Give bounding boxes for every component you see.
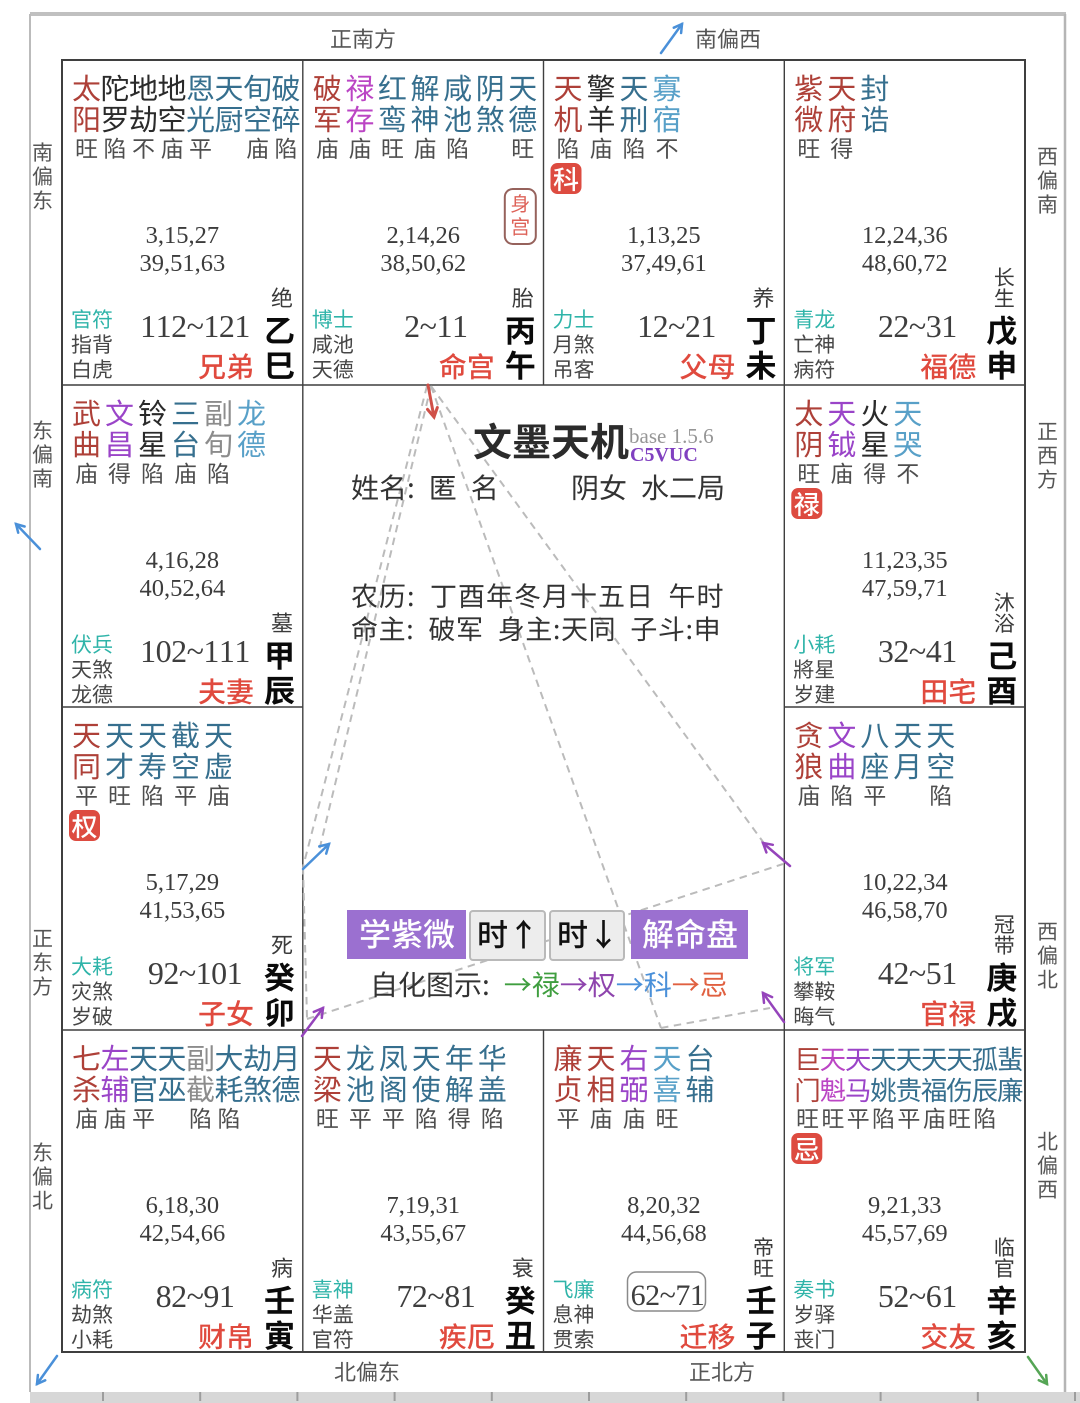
svg-text:12,24,36: 12,24,36 [862,222,948,249]
svg-text:2,14,26: 2,14,26 [386,222,460,249]
svg-text:43,55,67: 43,55,67 [380,1220,466,1247]
svg-text:8,20,32: 8,20,32 [627,1192,701,1219]
svg-text:48,60,72: 48,60,72 [862,250,948,277]
svg-text:72~81: 72~81 [396,1278,475,1314]
svg-text:3,15,27: 3,15,27 [146,222,220,249]
svg-text:6,18,30: 6,18,30 [146,1192,220,1219]
svg-text:46,58,70: 46,58,70 [862,897,948,924]
svg-text:52~61: 52~61 [878,1278,957,1314]
svg-text:4,16,28: 4,16,28 [146,547,220,574]
svg-text:38,50,62: 38,50,62 [380,250,466,277]
svg-text:12~21: 12~21 [637,308,716,344]
svg-text:37,49,61: 37,49,61 [621,250,707,277]
svg-text:62~71: 62~71 [631,1279,705,1312]
svg-text:7,19,31: 7,19,31 [386,1192,460,1219]
svg-text:11,23,35: 11,23,35 [862,547,948,574]
svg-text:42~51: 42~51 [878,955,957,991]
svg-text:32~41: 32~41 [878,633,957,669]
svg-text:1,13,25: 1,13,25 [627,222,701,249]
svg-text:45,57,69: 45,57,69 [862,1220,948,1247]
svg-text:47,59,71: 47,59,71 [862,575,948,602]
svg-text:10,22,34: 10,22,34 [862,869,948,896]
svg-text:9,21,33: 9,21,33 [868,1192,942,1219]
svg-text:42,54,66: 42,54,66 [140,1220,226,1247]
svg-text:C5VUC: C5VUC [630,444,698,466]
svg-text:102~111: 102~111 [140,633,250,669]
svg-text:2~11: 2~11 [404,308,467,344]
svg-text:92~101: 92~101 [148,955,242,991]
svg-text:5,17,29: 5,17,29 [146,869,220,896]
svg-text:41,53,65: 41,53,65 [140,897,226,924]
svg-text:112~121: 112~121 [140,308,250,344]
svg-text:40,52,64: 40,52,64 [140,575,226,602]
svg-text:39,51,63: 39,51,63 [140,250,226,277]
svg-text:22~31: 22~31 [878,308,957,344]
svg-text:44,56,68: 44,56,68 [621,1220,707,1247]
svg-text:82~91: 82~91 [156,1278,235,1314]
